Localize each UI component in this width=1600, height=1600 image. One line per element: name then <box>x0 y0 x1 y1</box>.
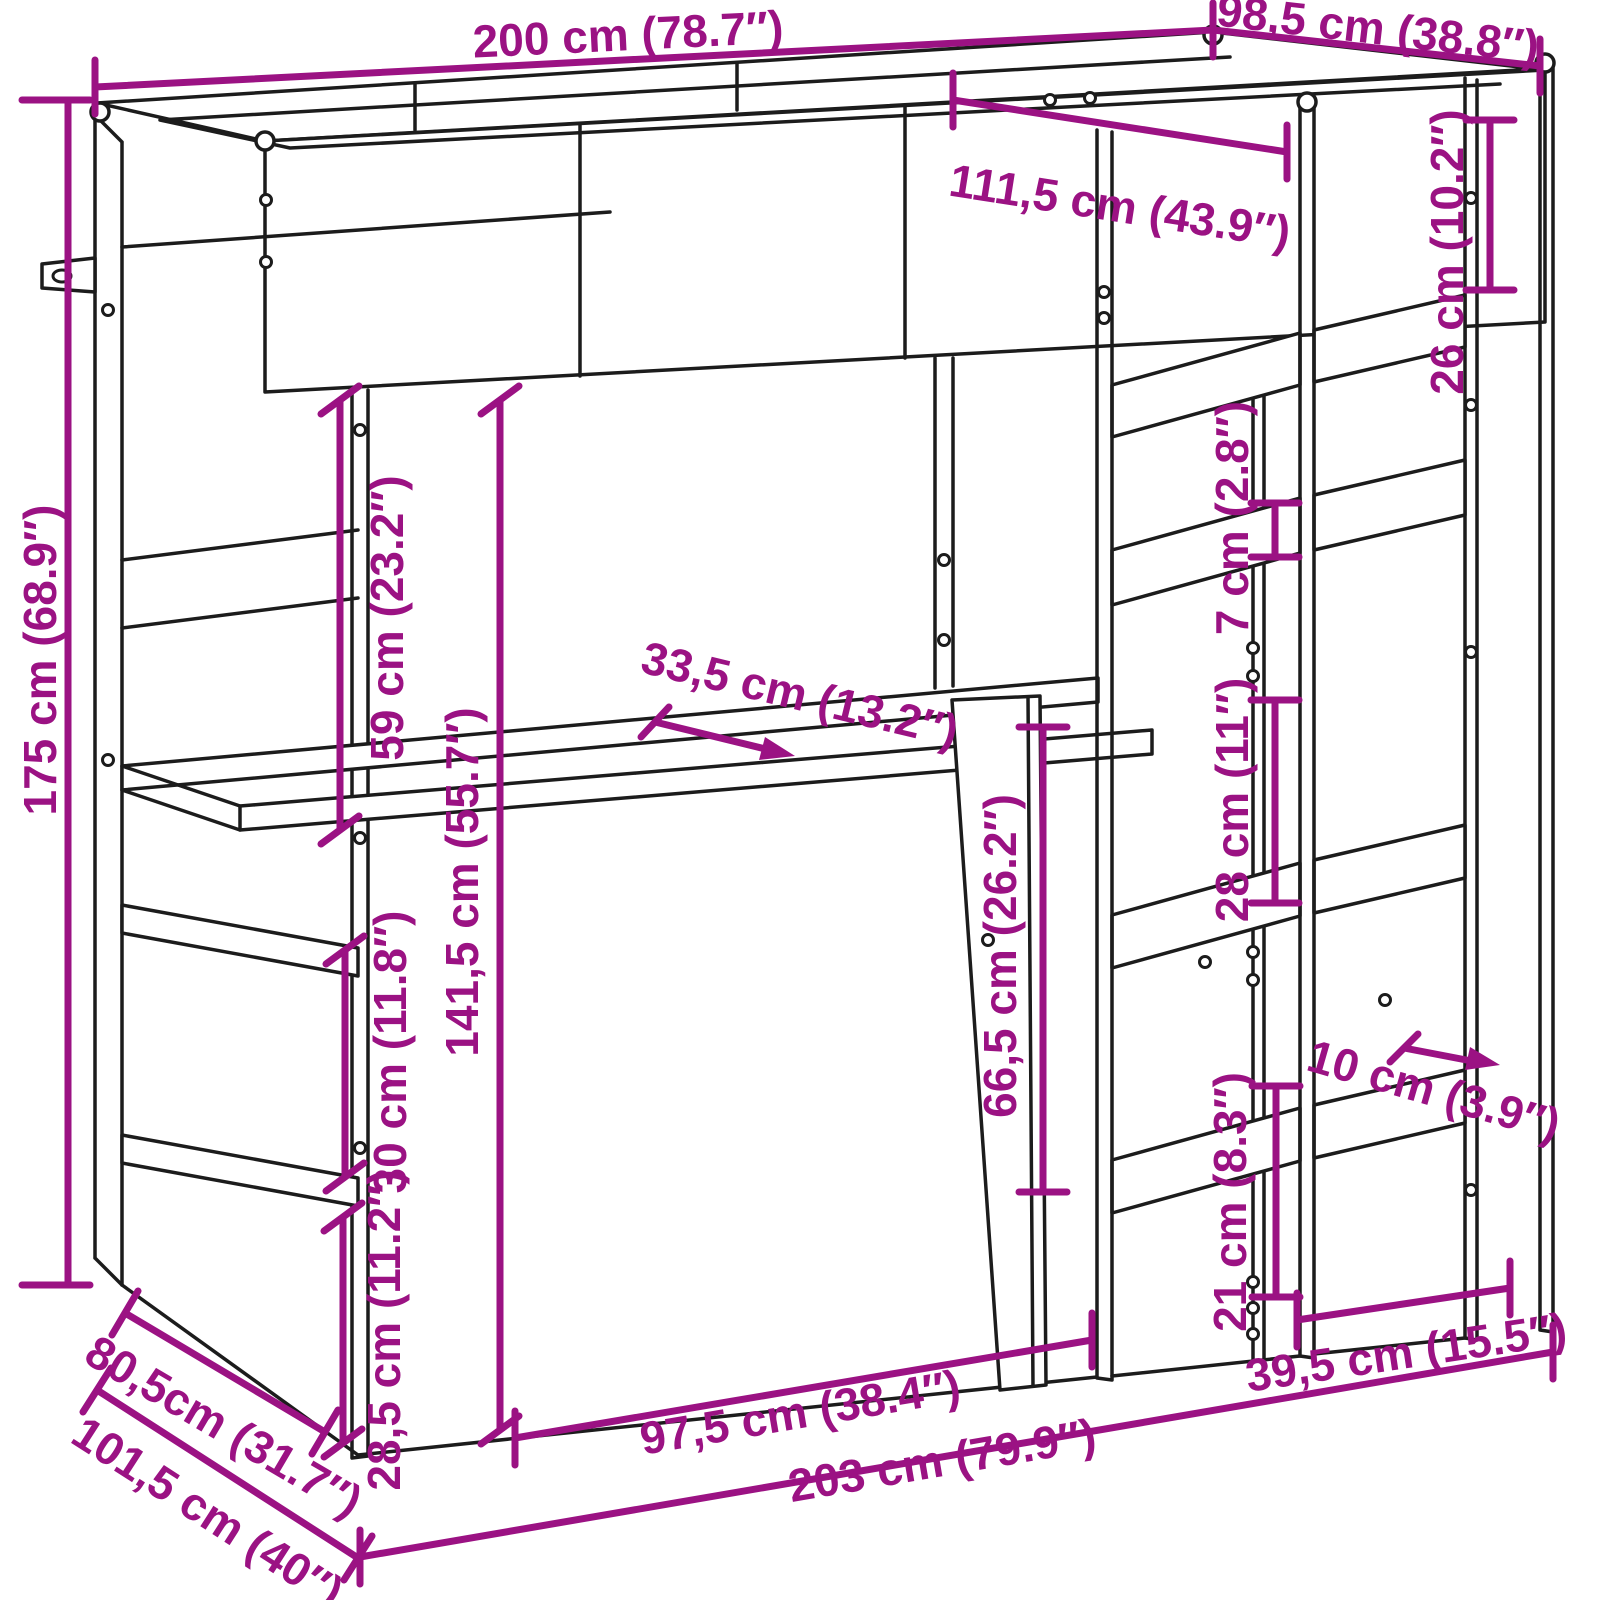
dimension-label: 59 cm (23.2″) <box>361 475 413 760</box>
screw-hole <box>355 833 366 844</box>
dimension-arrowhead <box>759 737 795 760</box>
dimension-label: 141,5 cm (55.7″) <box>436 707 488 1056</box>
screw-hole <box>939 635 950 646</box>
screw-hole <box>355 425 366 436</box>
screw-hole <box>1466 400 1477 411</box>
screw-hole <box>261 195 272 206</box>
dimension-diagram-page: 200 cm (78.7″) 98,5 cm (38.8″) 111,5 cm … <box>0 0 1600 1600</box>
tower-shelf-2-side <box>1314 825 1465 913</box>
ball-cap <box>256 132 274 150</box>
screw-hole <box>1248 643 1259 654</box>
screw-hole <box>1248 947 1259 958</box>
screw-hole <box>1380 995 1391 1006</box>
dimension-label: 21 cm (8.3″) <box>1204 1072 1256 1332</box>
screw-hole <box>1466 647 1477 658</box>
screw-hole <box>1466 1185 1477 1196</box>
tower-shelf-1-side <box>1314 460 1465 550</box>
dimension-under-bed-height: 141,5 cm (55.7″) <box>436 386 519 1444</box>
screw-hole <box>103 305 114 316</box>
furniture-drawing <box>42 26 1554 1458</box>
left-end-panel <box>95 115 122 1285</box>
dimension-label: 28,5 cm (11.2″) <box>358 1169 410 1490</box>
dimension-diagram-canvas: 200 cm (78.7″) 98,5 cm (38.8″) 111,5 cm … <box>0 0 1600 1600</box>
dimension-label: 26 cm (10.2″) <box>1421 109 1473 394</box>
ball-cap <box>1298 93 1316 111</box>
screw-hole <box>939 555 950 566</box>
screw-hole <box>103 755 114 766</box>
screw-hole <box>1248 975 1259 986</box>
screw-hole <box>1099 313 1110 324</box>
dimension-label: 28 cm (11″) <box>1206 678 1258 923</box>
dimension-arrowhead <box>1465 1047 1500 1070</box>
screw-hole <box>1085 93 1096 104</box>
dimension-label: 175 cm (68.9″) <box>14 505 66 816</box>
dimension-label: 30 cm (11.8″) <box>364 911 416 1194</box>
screw-hole <box>1045 95 1056 106</box>
screw-hole <box>1200 957 1211 968</box>
left-lower-shelf-upper <box>122 905 358 976</box>
dimension-label: 39,5 cm (15.5″) <box>1242 1302 1570 1401</box>
dimension-label: 66,5 cm (26.2″) <box>974 794 1026 1118</box>
dimension-label: 7 cm (2.8″) <box>1206 401 1258 635</box>
dimension-left-shelf-gap: 30 cm (11.8″) <box>326 911 416 1194</box>
left-lower-shelf-lower <box>122 1135 358 1206</box>
screw-hole <box>1099 287 1110 298</box>
headboard-board <box>122 530 358 628</box>
screw-hole <box>261 257 272 268</box>
dimension-left-shelf-bottom-gap: 28,5 cm (11.2″) <box>324 1169 410 1490</box>
